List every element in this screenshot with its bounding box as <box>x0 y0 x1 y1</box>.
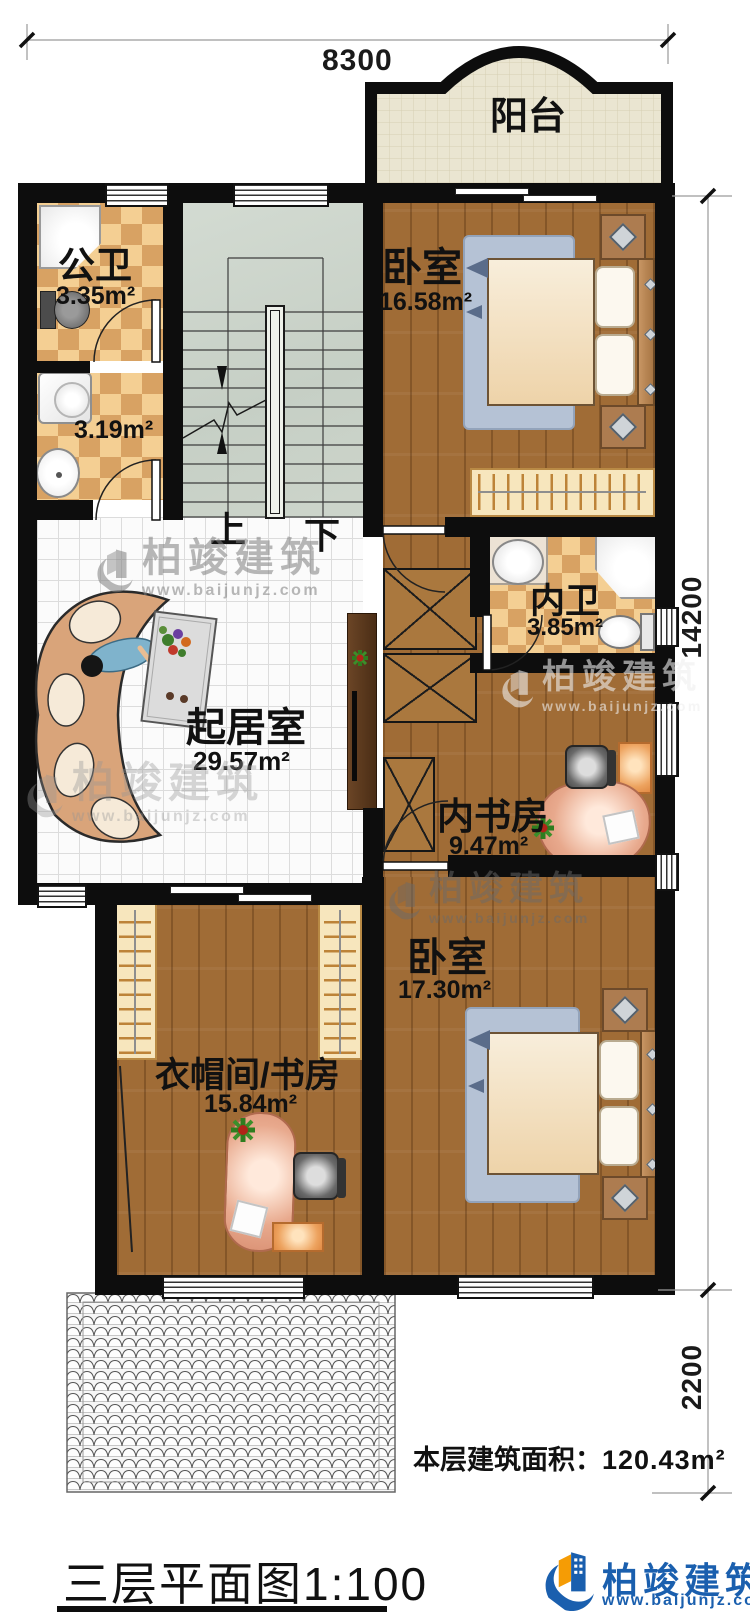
balcony-sliding-door <box>523 195 597 202</box>
study-chair-back <box>607 750 616 786</box>
wall-stair-left <box>163 203 183 520</box>
brand-logo-icon <box>540 1546 594 1612</box>
cloak-chair <box>293 1152 339 1200</box>
wall-stair-right <box>363 183 383 520</box>
laundry-sink <box>36 448 80 498</box>
living-small-window <box>37 884 87 908</box>
floor-area-label: 本层建筑面积： <box>413 1445 602 1475</box>
cloak-window <box>162 1275 305 1299</box>
balcony-label: 阳台 <box>490 98 566 136</box>
roof-terrace <box>66 1292 396 1493</box>
bedroom2-side-window <box>655 853 679 891</box>
public-bath-window <box>105 183 169 207</box>
study-window <box>655 702 679 777</box>
bedroom2-bottom-window <box>457 1275 594 1299</box>
wall-cloak-left <box>95 883 117 1295</box>
bedroom1-bed <box>487 258 595 406</box>
cloak-sliding-door <box>170 886 244 894</box>
bedroom2-nightstand <box>602 988 648 1032</box>
balcony-sliding-door <box>455 188 529 195</box>
wall-bedroom2-cloak <box>362 877 384 1295</box>
bedroom2-area: 17.30m² <box>398 978 491 1003</box>
bedroom1-nightstand <box>600 214 646 260</box>
bedroom1-pillow <box>595 266 635 328</box>
bedroom1-wardrobe <box>470 468 655 517</box>
dim-right-lower: 2200 <box>678 1342 708 1412</box>
living-label: 起居室 <box>186 708 306 748</box>
wall-innerbath-left <box>470 537 490 617</box>
cloak-area: 15.84m² <box>204 1092 297 1117</box>
dim-top: 8300 <box>322 46 393 76</box>
bedroom2-bed <box>487 1032 599 1175</box>
wall-bedroom1-bottom-b <box>445 517 655 537</box>
floor-area-note: 本层建筑面积：120.43m² <box>413 1438 726 1477</box>
cloak-label: 衣帽间/书房 <box>155 1058 340 1093</box>
stair-window <box>233 183 329 207</box>
floor-area-value: 120.43m² <box>602 1445 726 1475</box>
cloak-side-table <box>272 1222 324 1252</box>
wall-bedroom1-bottom-a <box>363 517 383 537</box>
brand-url: www.baijunjz.com <box>602 1592 750 1610</box>
living-area: 29.57m² <box>193 748 290 774</box>
hall-closet <box>383 757 435 852</box>
stairwell-floor <box>183 203 363 520</box>
study-label: 内书房 <box>437 798 548 835</box>
inner-bath-area: 3.85m² <box>527 616 603 640</box>
public-bath-label: 公卫 <box>58 247 132 284</box>
cloak-wardrobe-left <box>113 902 157 1060</box>
bedroom2-nightstand <box>602 1176 648 1220</box>
floor-plan: 阳台 公卫 3.35m² 3.19m² 卧室 16.58m² 内卫 3.85m²… <box>0 0 750 1620</box>
bedroom1-label: 卧室 <box>382 248 462 288</box>
stairs-up-label: 上 <box>210 512 246 548</box>
tv-cabinet <box>347 613 377 810</box>
wall-laundry-living <box>18 500 93 520</box>
inner-bath-toilet <box>598 613 656 651</box>
bedroom1-area: 16.58m² <box>379 290 472 315</box>
wall-innerbath-bottom <box>470 653 655 673</box>
living-room-floor <box>37 517 363 883</box>
cloak-wardrobe-right <box>318 902 362 1060</box>
study-chair <box>565 745 609 789</box>
bedroom1-pillow <box>595 334 635 396</box>
laundry-area: 3.19m² <box>74 418 153 443</box>
cloak-chair-back <box>337 1158 346 1198</box>
bedroom2-pillow <box>599 1040 639 1100</box>
bedroom2-label: 卧室 <box>407 938 487 978</box>
wall-bath-divider <box>18 361 90 373</box>
wall-study-bedroom2-a <box>363 855 383 877</box>
bedroom1-nightstand <box>600 405 646 449</box>
stairs-down-label: 下 <box>304 518 340 554</box>
wall-left <box>18 183 37 905</box>
dim-right-main: 14200 <box>678 572 708 662</box>
bedroom2-pillow <box>599 1106 639 1166</box>
inner-bath-counter <box>482 532 548 585</box>
cloak-sliding-door <box>238 894 312 902</box>
title-underline <box>57 1606 387 1612</box>
hall-closet <box>383 568 477 650</box>
study-area: 9.47m² <box>449 834 528 859</box>
public-bath-area: 3.35m² <box>56 284 135 309</box>
plan-title: 三层平面图1:100 <box>63 1548 428 1614</box>
hall-closet <box>383 653 477 723</box>
